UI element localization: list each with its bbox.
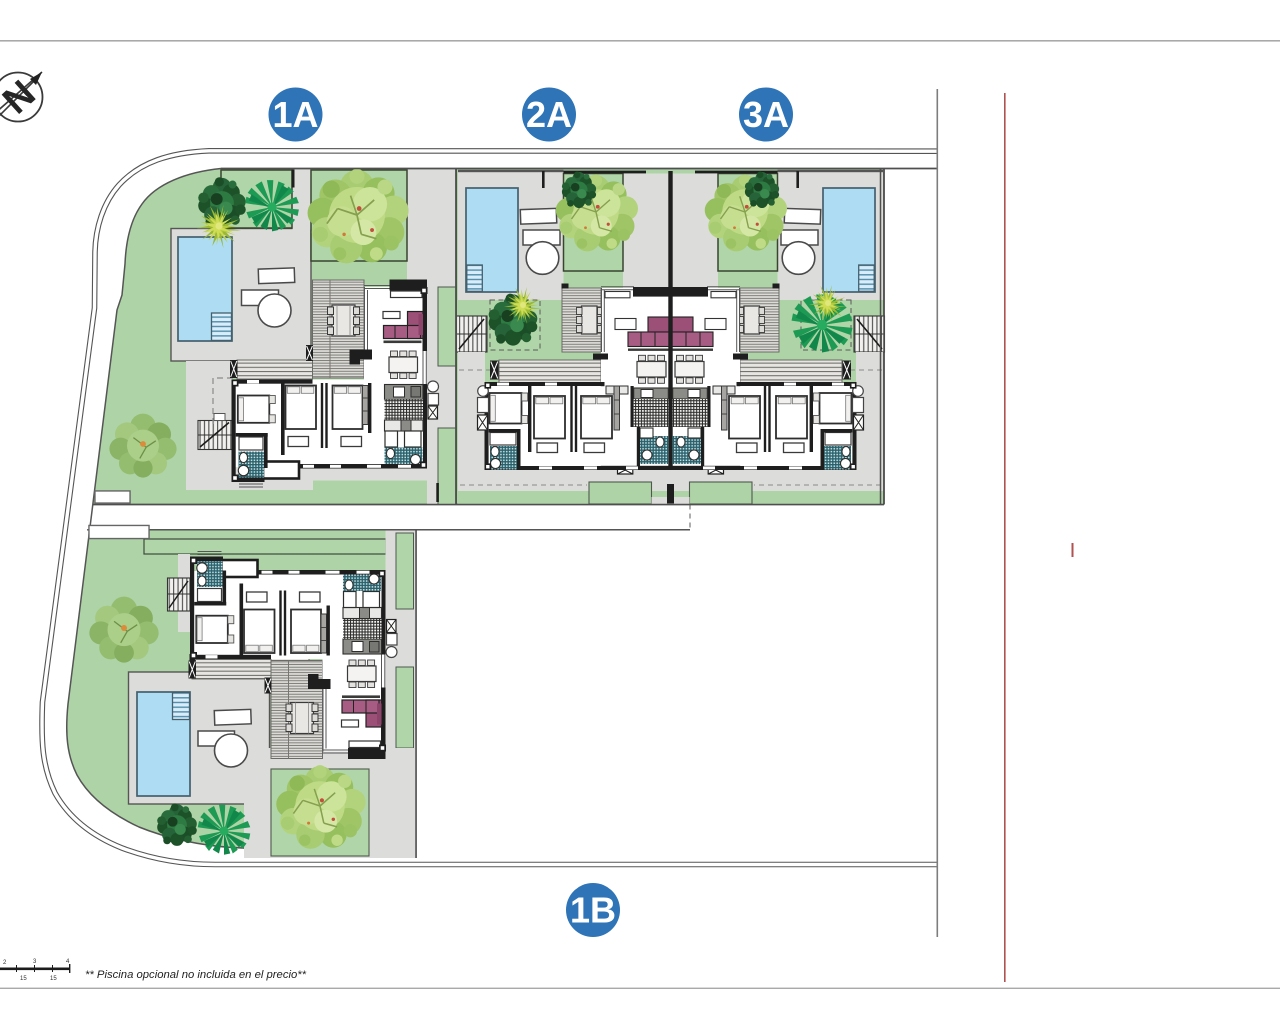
svg-text:2A: 2A xyxy=(526,94,572,135)
svg-text:1A: 1A xyxy=(272,94,318,135)
svg-text:** Piscina opcional no incluid: ** Piscina opcional no incluida en el pr… xyxy=(85,969,307,981)
svg-text:15: 15 xyxy=(20,976,27,982)
svg-text:3A: 3A xyxy=(743,94,789,135)
svg-text:15: 15 xyxy=(50,976,57,982)
svg-text:1B: 1B xyxy=(570,890,616,931)
